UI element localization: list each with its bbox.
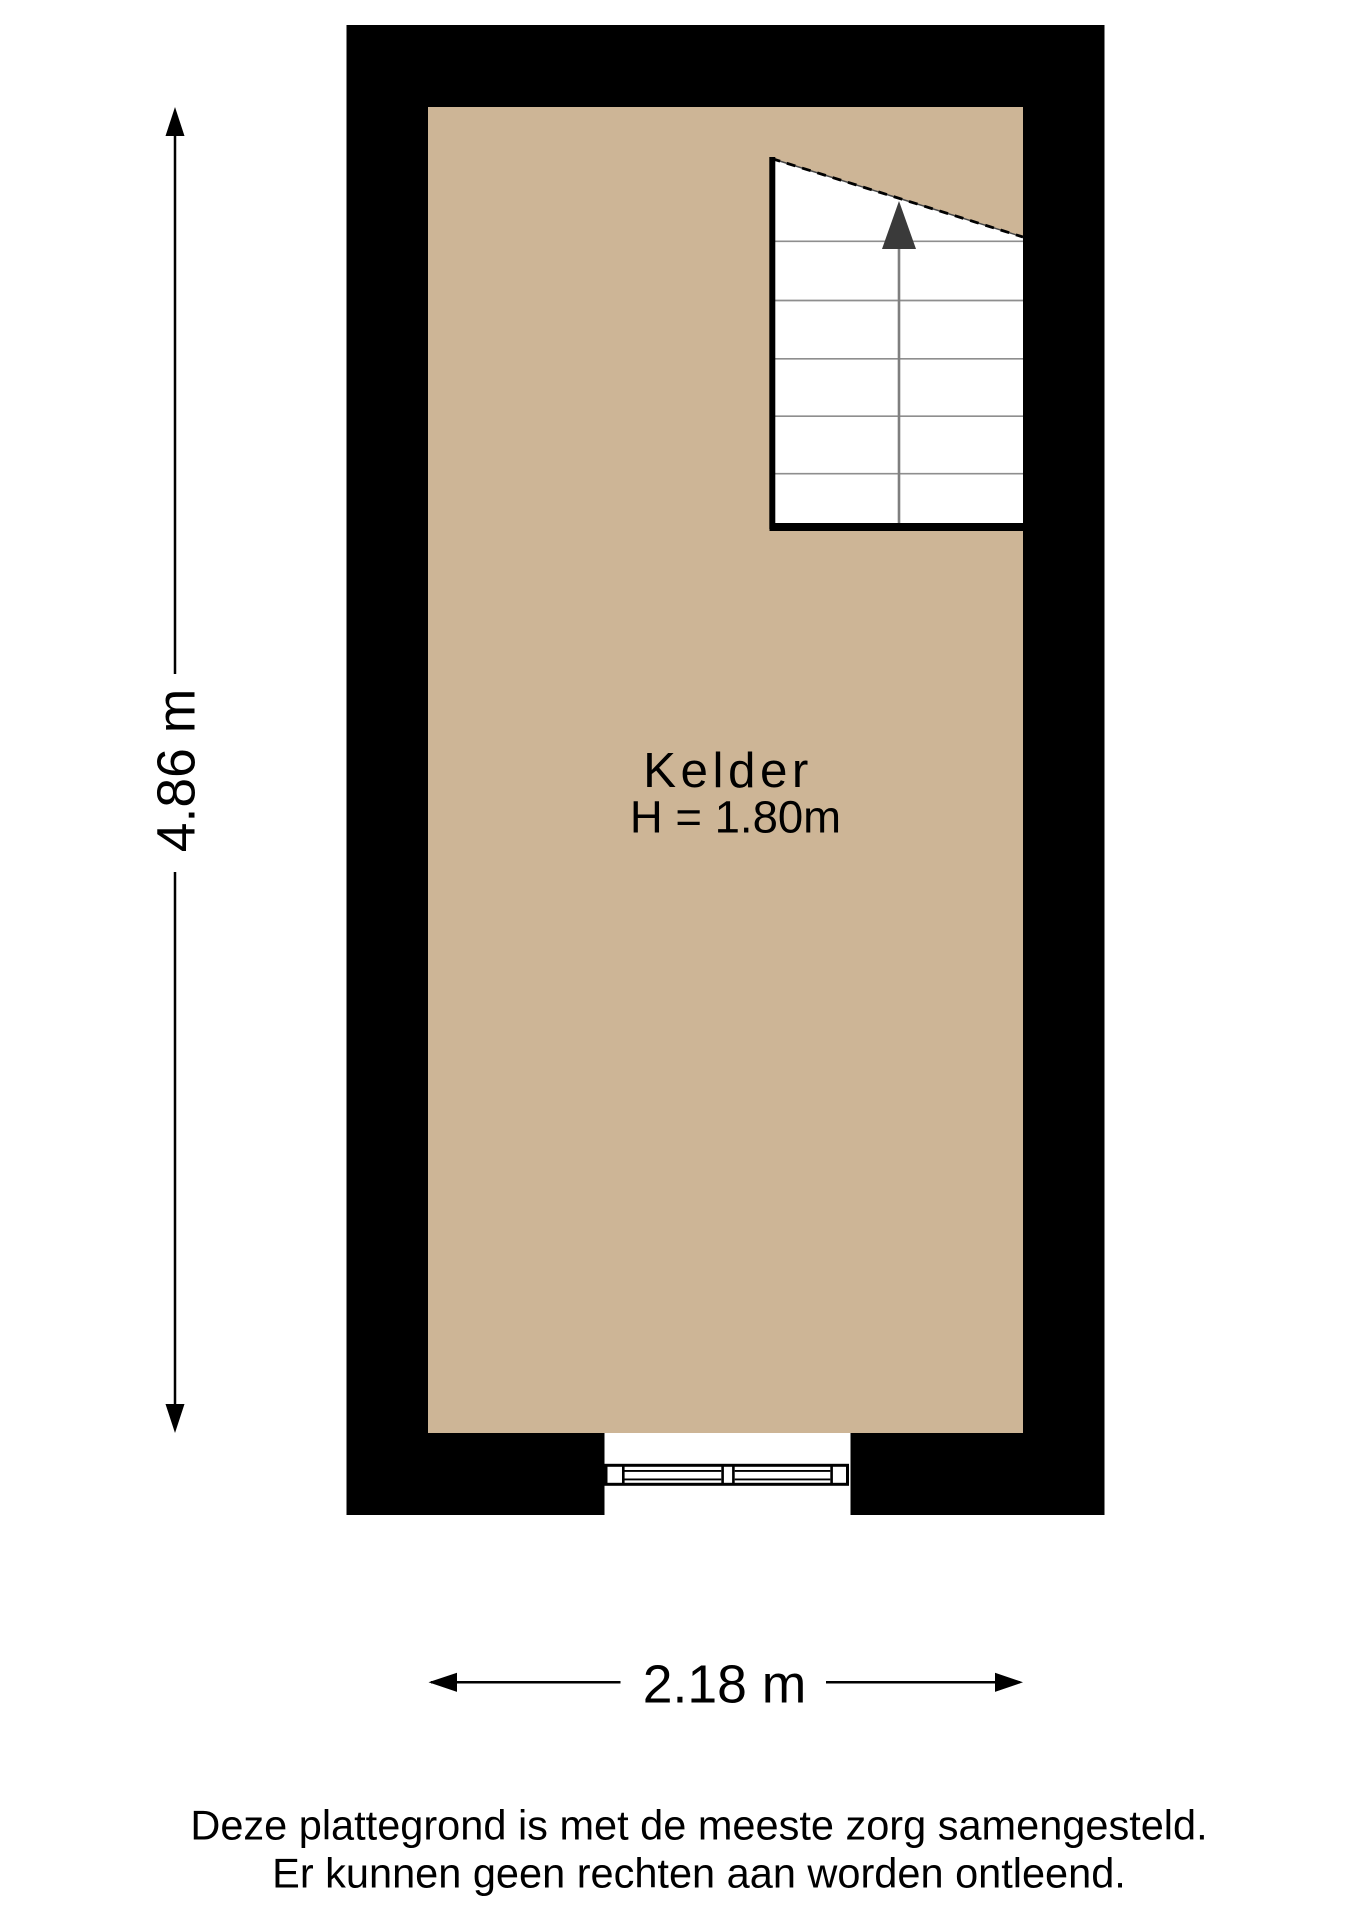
svg-text:4.86 m: 4.86 m — [148, 689, 207, 853]
svg-text:Kelder: Kelder — [643, 743, 813, 798]
svg-text:Deze plattegrond is met de mee: Deze plattegrond is met de meeste zorg s… — [190, 1802, 1207, 1849]
svg-text:H = 1.80m: H = 1.80m — [630, 792, 841, 843]
svg-text:2.18 m: 2.18 m — [643, 1655, 807, 1714]
svg-text:Er kunnen geen rechten aan wor: Er kunnen geen rechten aan worden ontlee… — [272, 1850, 1126, 1897]
